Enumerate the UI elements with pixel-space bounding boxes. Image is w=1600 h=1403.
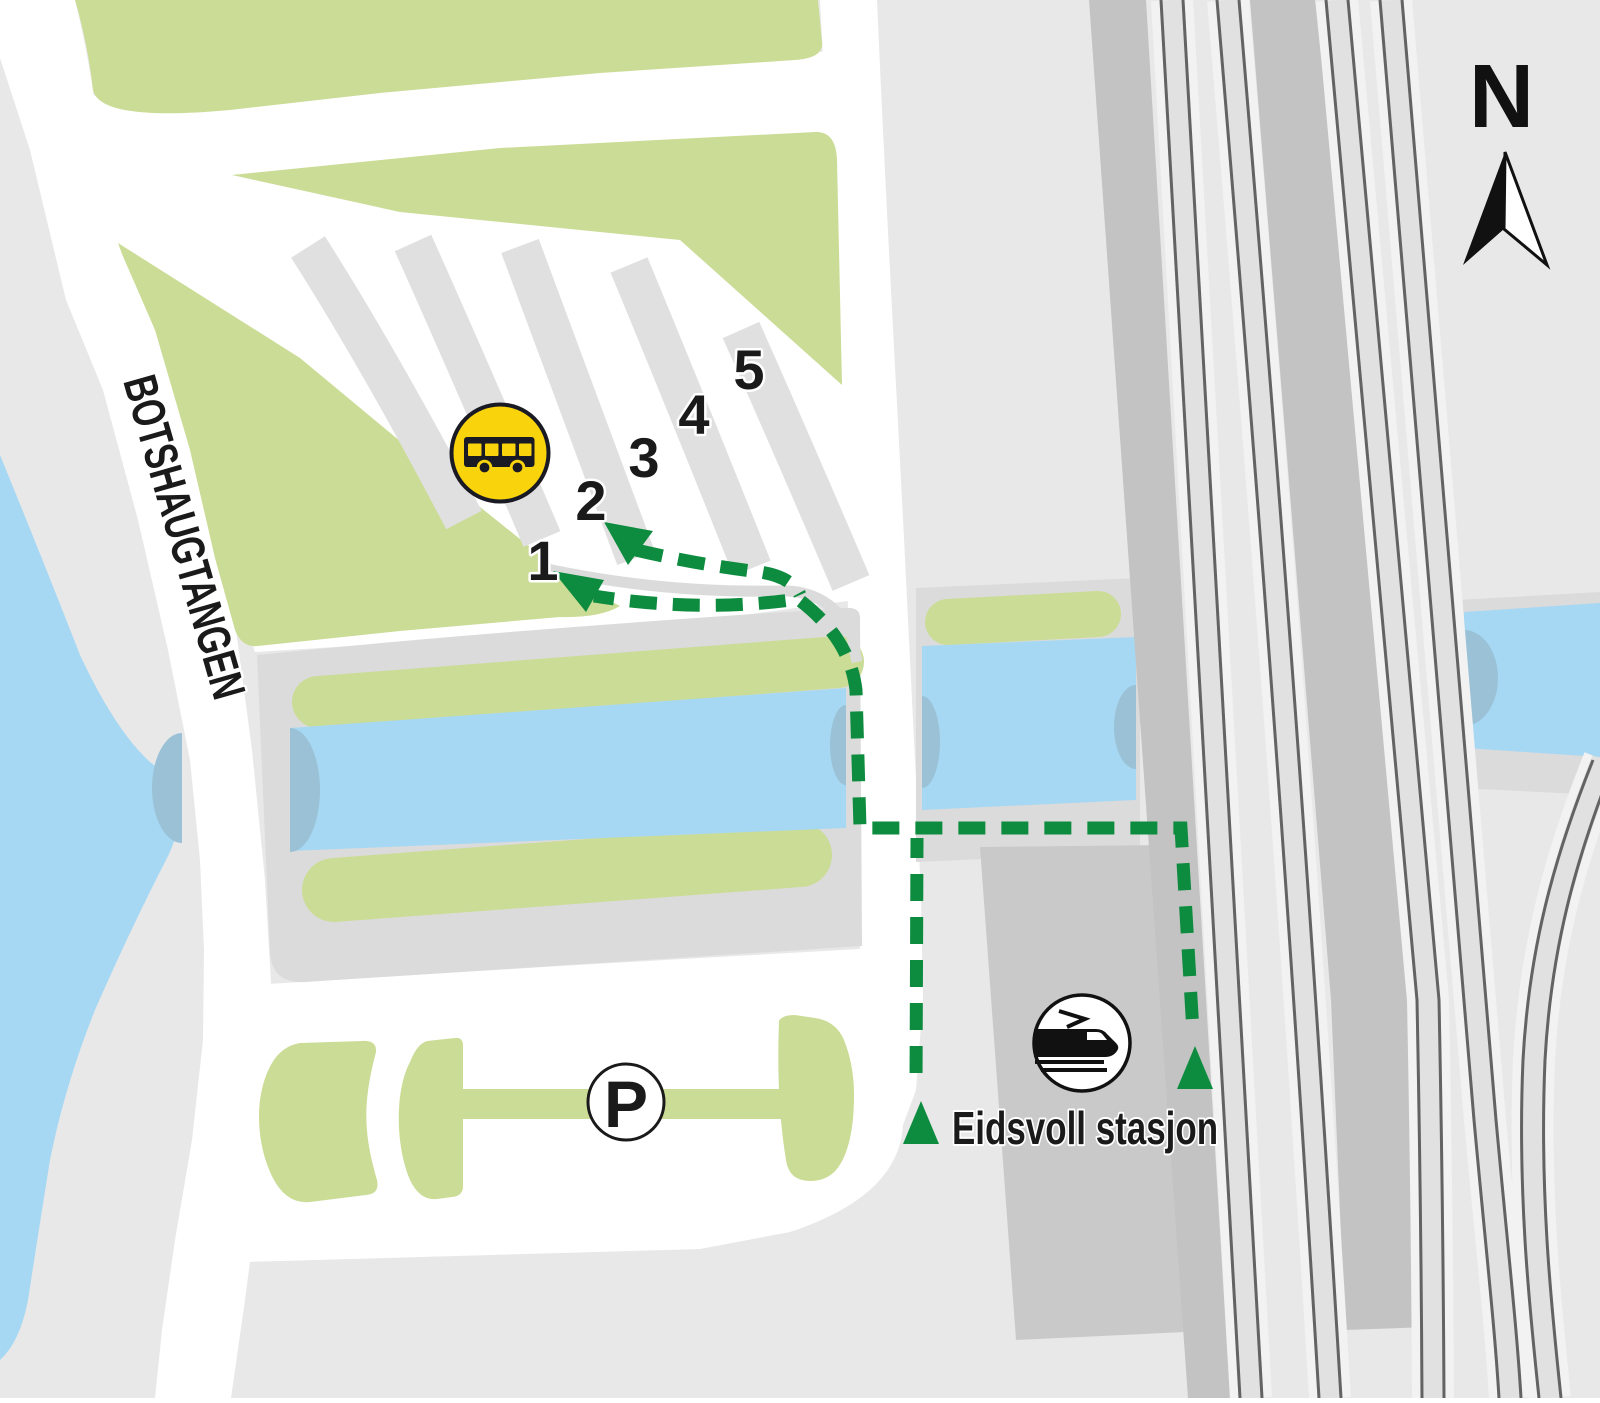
svg-text:5: 5 <box>733 338 764 401</box>
svg-text:1: 1 <box>527 529 558 592</box>
svg-text:3: 3 <box>628 426 659 489</box>
svg-text:4: 4 <box>678 383 709 446</box>
svg-text:N: N <box>1469 47 1534 147</box>
svg-text:2: 2 <box>575 469 606 532</box>
svg-text:Eidsvoll stasjon: Eidsvoll stasjon <box>952 1102 1218 1154</box>
svg-text:P: P <box>604 1067 648 1141</box>
